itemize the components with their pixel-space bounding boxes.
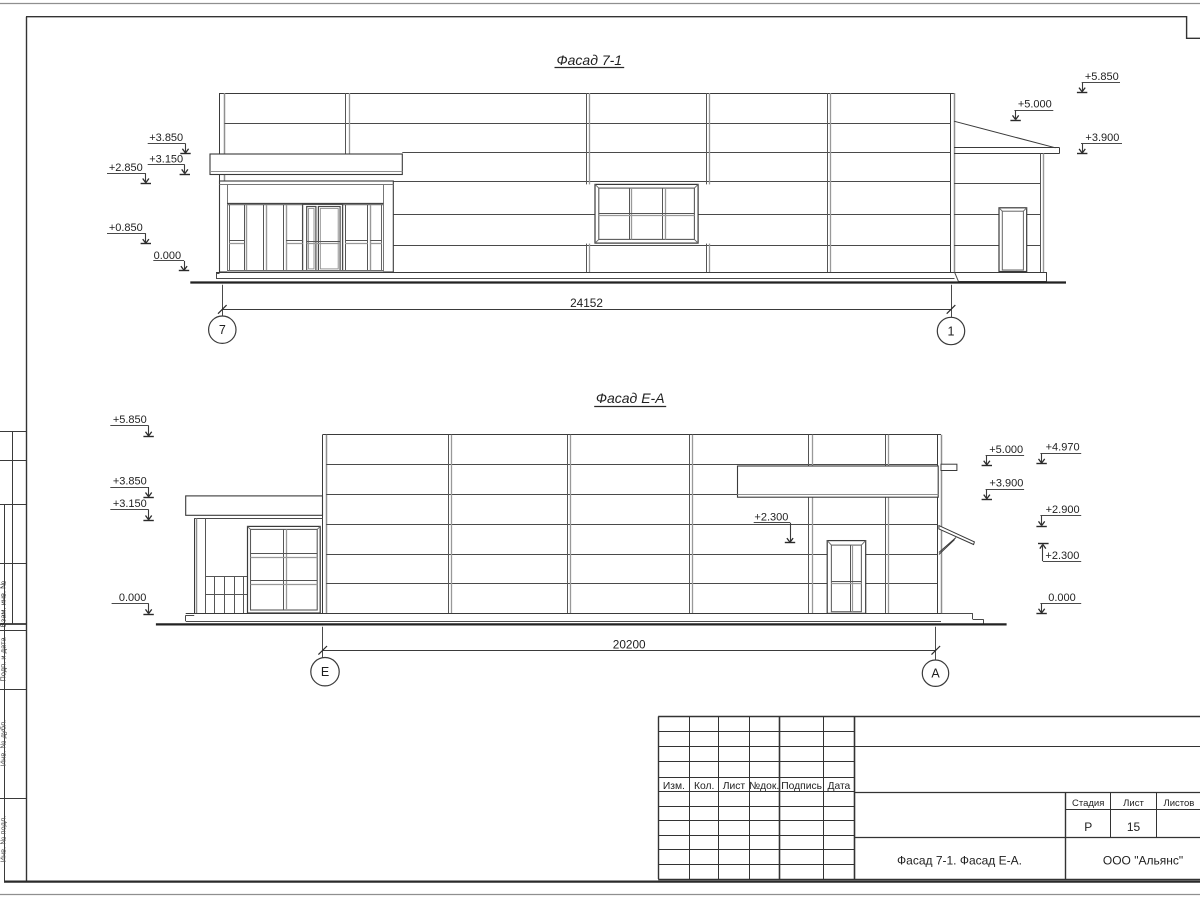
svg-text:Подпись: Подпись xyxy=(781,781,822,792)
svg-text:+0.850: +0.850 xyxy=(109,222,143,234)
svg-text:+5.850: +5.850 xyxy=(1085,71,1119,83)
svg-text:0.000: 0.000 xyxy=(119,592,147,604)
svg-text:E: E xyxy=(321,665,329,679)
svg-text:A: A xyxy=(931,667,940,681)
svg-text:Фасад 7-1: Фасад 7-1 xyxy=(557,52,623,68)
svg-text:Подп. и дата: Подп. и дата xyxy=(0,637,8,682)
svg-text:+2.850: +2.850 xyxy=(109,162,143,174)
svg-text:+3.150: +3.150 xyxy=(113,498,147,510)
svg-text:ООО "Альянс": ООО "Альянс" xyxy=(1103,854,1183,868)
svg-text:1: 1 xyxy=(948,325,955,339)
svg-text:15: 15 xyxy=(1127,820,1141,834)
svg-text:24152: 24152 xyxy=(570,296,603,310)
svg-text:Р: Р xyxy=(1084,820,1092,834)
svg-text:+3.150: +3.150 xyxy=(149,153,183,165)
svg-text:+3.900: +3.900 xyxy=(989,478,1023,490)
svg-text:Лист: Лист xyxy=(723,781,746,792)
svg-text:+5.000: +5.000 xyxy=(1018,99,1052,111)
svg-text:+5.850: +5.850 xyxy=(113,414,147,426)
svg-text:+5.000: +5.000 xyxy=(989,444,1023,456)
svg-text:№док.: №док. xyxy=(749,781,779,792)
svg-text:7: 7 xyxy=(219,323,226,337)
svg-text:+3.850: +3.850 xyxy=(149,132,183,144)
svg-text:+2.300: +2.300 xyxy=(754,511,788,523)
svg-text:0.000: 0.000 xyxy=(1048,592,1076,604)
svg-text:+2.300: +2.300 xyxy=(1045,550,1079,562)
svg-text:Изм.: Изм. xyxy=(663,781,685,792)
svg-text:Взам. инв. №: Взам. инв. № xyxy=(0,581,8,627)
svg-text:+4.970: +4.970 xyxy=(1046,442,1080,454)
svg-text:20200: 20200 xyxy=(613,637,646,651)
svg-text:Фасад Е-А: Фасад Е-А xyxy=(596,390,665,406)
svg-text:+2.900: +2.900 xyxy=(1046,504,1080,516)
svg-text:+3.850: +3.850 xyxy=(113,476,147,488)
svg-text:Лист: Лист xyxy=(1123,798,1144,809)
svg-text:Инв. № подл.: Инв. № подл. xyxy=(0,816,8,863)
svg-text:+3.900: +3.900 xyxy=(1085,132,1119,144)
svg-text:Листов: Листов xyxy=(1163,798,1194,809)
svg-text:Инв. № дубл.: Инв. № дубл. xyxy=(0,720,8,766)
svg-text:Кол.: Кол. xyxy=(694,781,714,792)
svg-text:Дата: Дата xyxy=(827,781,850,792)
svg-text:Фасад 7-1. Фасад Е-А.: Фасад 7-1. Фасад Е-А. xyxy=(897,854,1022,868)
svg-text:Стадия: Стадия xyxy=(1072,798,1104,809)
